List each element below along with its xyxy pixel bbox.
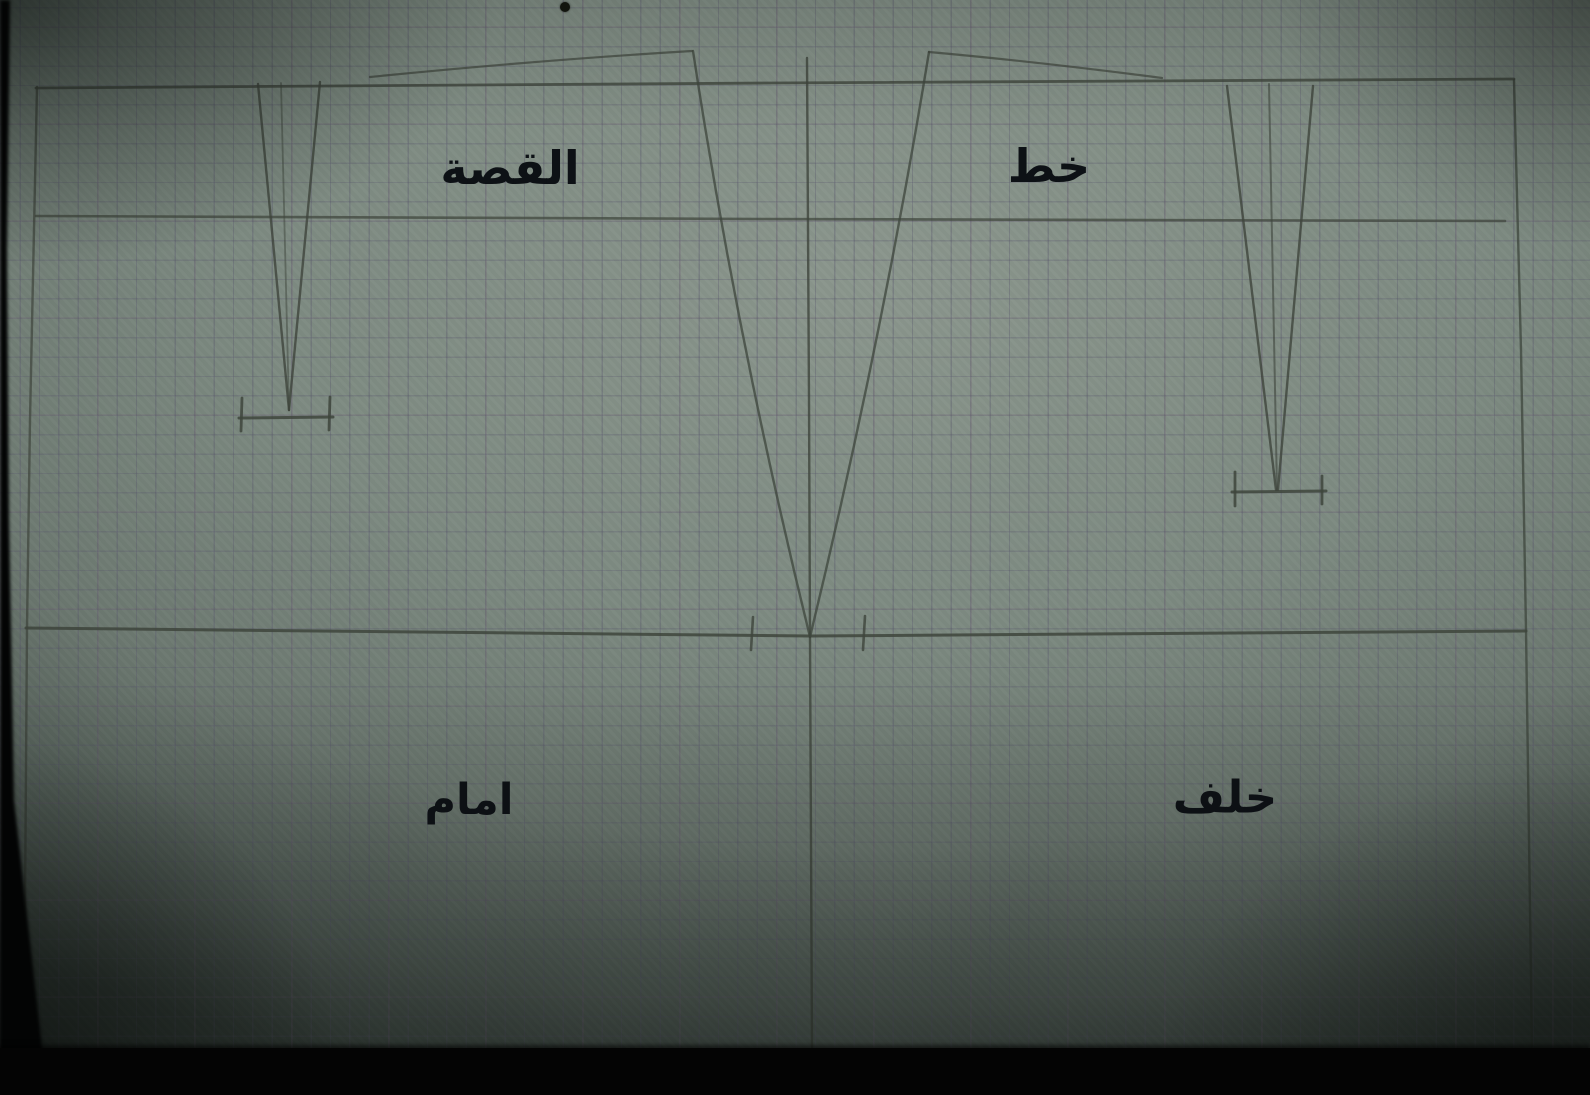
back-dart-bar (1232, 491, 1326, 492)
center-front-edge (24, 87, 37, 1047)
front-dart-right-leg (289, 82, 320, 410)
center-back-edge (1514, 80, 1532, 1047)
ink-dot (560, 2, 570, 12)
label-yoke-text: القصة (440, 141, 579, 195)
hip-line (26, 628, 1526, 636)
back-waist-raise-curve (929, 52, 1162, 78)
front-dart-bar-tick-left (241, 398, 242, 431)
front-dart-bar-tick-right (329, 397, 330, 430)
label-front-text: امام (424, 775, 513, 825)
photo-bottom-black-bar (0, 1048, 1590, 1095)
front-side-seam (693, 51, 810, 637)
yoke-line (36, 216, 1505, 221)
back-dart-center-line (1269, 84, 1277, 490)
side-seam-vertical (807, 58, 812, 1047)
label-line-text: خط (1008, 139, 1090, 193)
front-dart-bar (239, 417, 333, 418)
hip-notch-right (863, 616, 865, 650)
pattern-drawing (0, 0, 1590, 1095)
back-dart-right-leg (1278, 86, 1313, 490)
back-side-seam (810, 52, 929, 637)
hip-notch-left (751, 617, 753, 650)
label-back-text: خلف (1173, 771, 1277, 824)
photo-of-pattern-draft: القصة خط امام خلف (0, 0, 1590, 1095)
front-waist-raise-curve (370, 51, 692, 77)
back-dart-left-leg (1227, 86, 1276, 490)
